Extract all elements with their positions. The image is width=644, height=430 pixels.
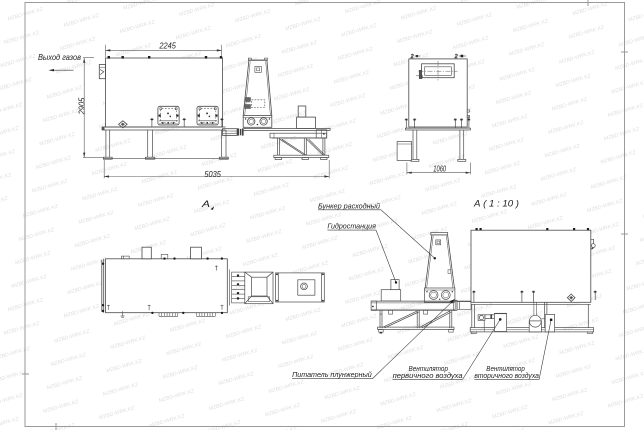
svg-text:2: 2 [454,54,458,60]
svg-text:А ( 1 : 10 ): А ( 1 : 10 ) [473,199,519,210]
svg-text:1060: 1060 [433,164,446,173]
svg-text:2: 2 [410,54,414,60]
svg-text:5035: 5035 [204,170,221,179]
svg-text:первичного воздуха: первичного воздуха [393,371,463,380]
svg-text:Бункер расходный: Бункер расходный [318,201,380,210]
svg-text:вторичного воздуха: вторичного воздуха [474,371,539,380]
svg-text:Питатель плунжерный: Питатель плунжерный [292,370,372,379]
svg-text:Выход газов: Выход газов [38,53,81,62]
svg-text:Гидростанция: Гидростанция [327,222,376,231]
svg-text:2245: 2245 [158,41,176,50]
svg-text:А: А [201,199,210,210]
svg-text:2905: 2905 [77,97,86,115]
